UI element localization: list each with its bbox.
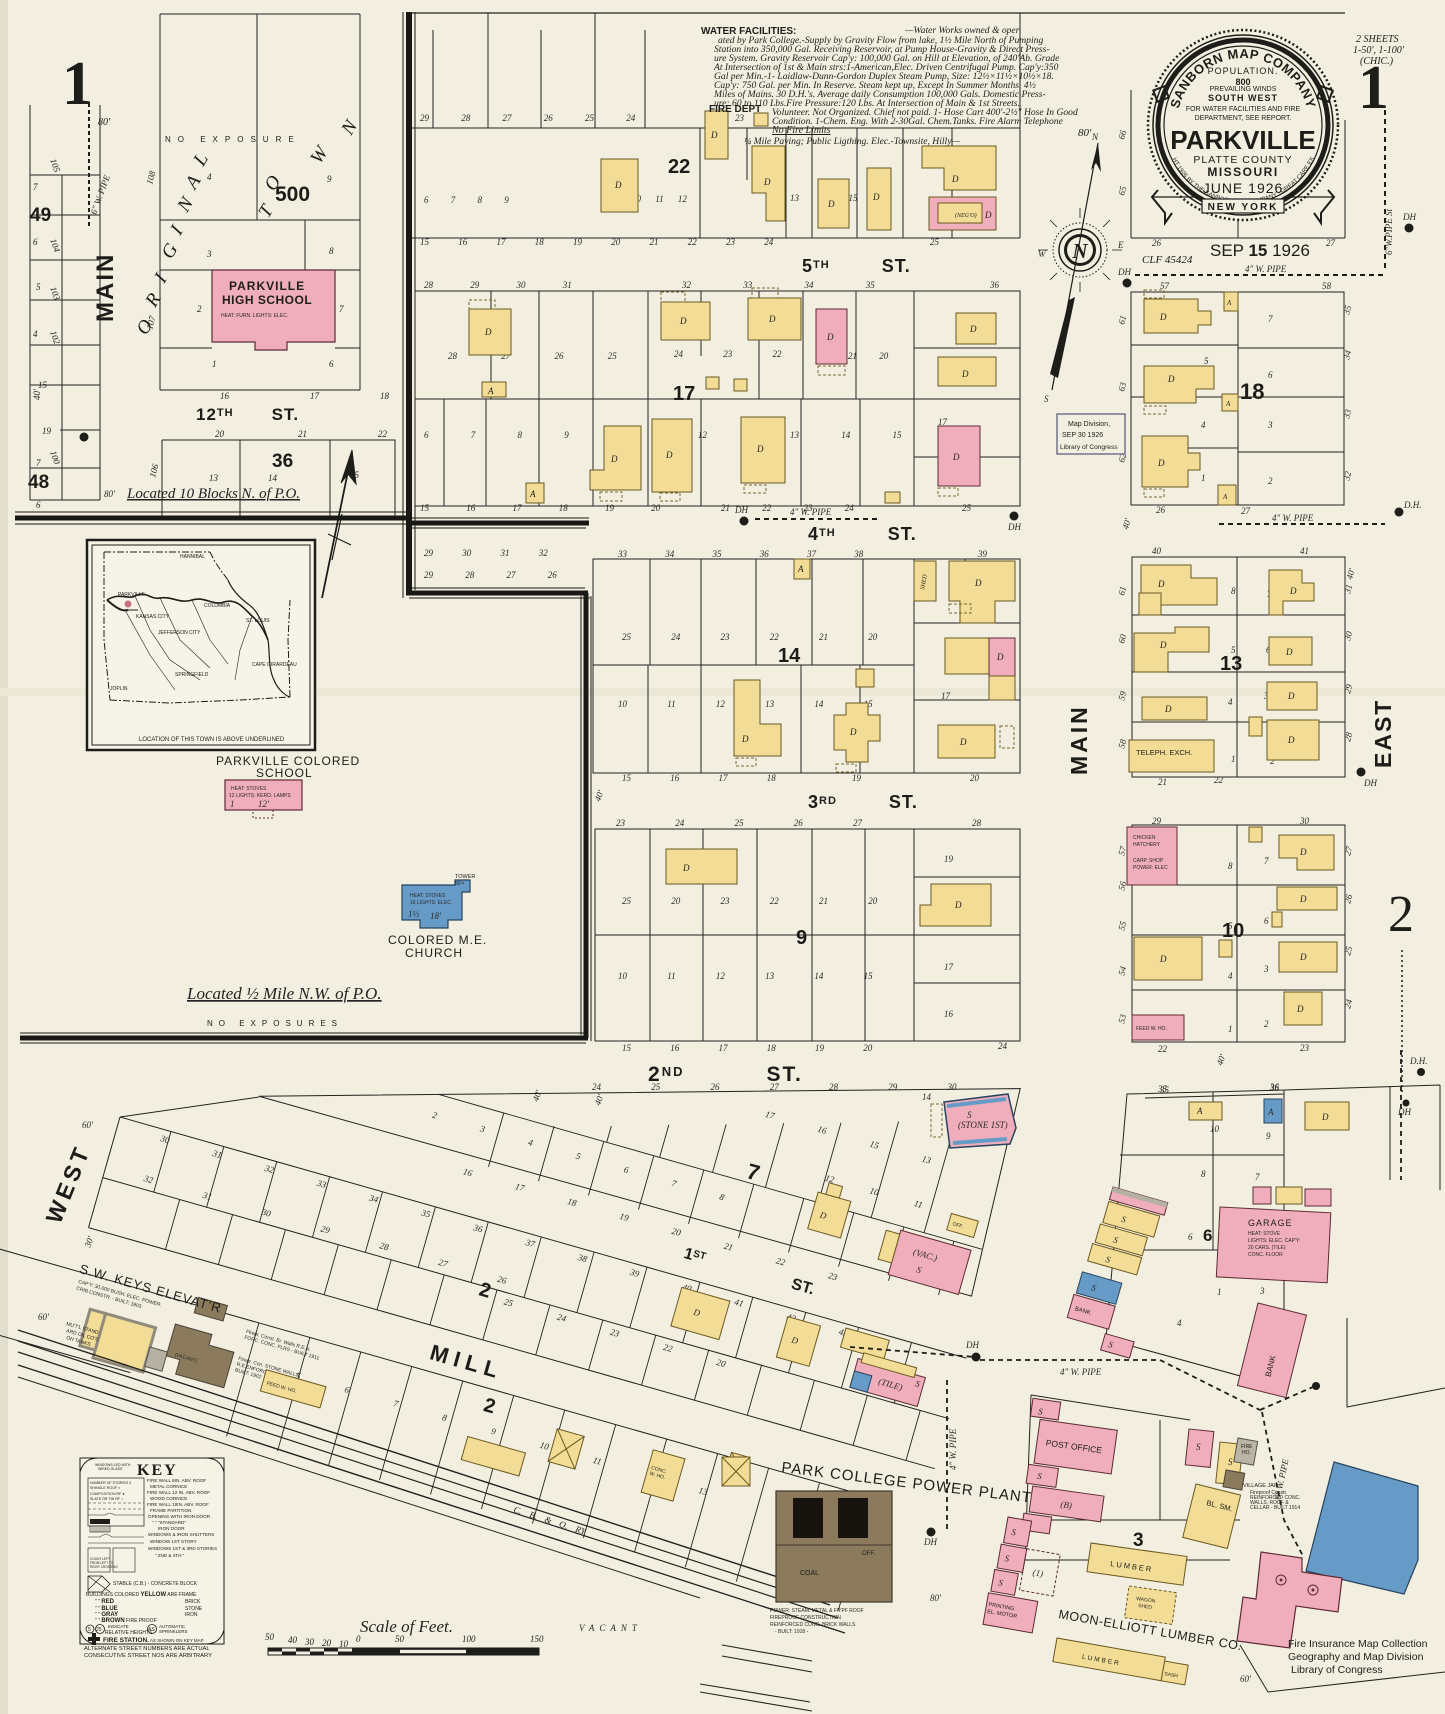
svg-text:D: D xyxy=(1157,458,1165,468)
svg-text:41: 41 xyxy=(1300,546,1309,556)
svg-text:SPRINKLERS: SPRINKLERS xyxy=(159,1629,188,1634)
svg-text:RELATIVE HEIGHTS: RELATIVE HEIGHTS xyxy=(105,1630,153,1636)
svg-text:1½: 1½ xyxy=(408,909,420,919)
svg-text:13: 13 xyxy=(1220,653,1242,675)
svg-text:No Fire Limits: No Fire Limits xyxy=(771,125,831,136)
svg-text:2: 2 xyxy=(1388,886,1414,943)
svg-text:TELEPH. EXCH.: TELEPH. EXCH. xyxy=(1136,748,1192,757)
svg-text:D: D xyxy=(1299,952,1307,962)
svg-text:COLORED M.E.: COLORED M.E. xyxy=(388,933,487,947)
svg-text:DEPARTMENT, SEE REPORT.: DEPARTMENT, SEE REPORT. xyxy=(1195,115,1292,122)
svg-text:10 11 12 13 14 15: 10 11 12 13 14 15 xyxy=(618,971,873,981)
svg-text:IRON: IRON xyxy=(185,1612,198,1618)
svg-text:D: D xyxy=(1321,1112,1329,1122)
svg-text:BRICK: BRICK xyxy=(185,1599,201,1605)
svg-text:7: 7 xyxy=(1268,314,1273,324)
svg-text:FOR WATER FACILITIES AND FIRE: FOR WATER FACILITIES AND FIRE xyxy=(1186,106,1301,113)
svg-text:NUMBER OF STORIES 2: NUMBER OF STORIES 2 xyxy=(90,1481,131,1485)
svg-text:15 16 17 18: 15 16 17 18 xyxy=(622,773,776,783)
svg-text:POWER: STEAM. METAL & FR'PF RO: POWER: STEAM. METAL & FR'PF ROOF xyxy=(770,1608,864,1614)
svg-text:19: 19 xyxy=(944,854,954,864)
svg-text:D: D xyxy=(1285,647,1293,657)
svg-text:" " "STANDARD": " " "STANDARD" xyxy=(152,1520,186,1525)
svg-text:CONSECUTIVE STREET NOS ARE ARB: CONSECUTIVE STREET NOS ARE ARBITRARY xyxy=(84,1653,212,1659)
svg-text:1: 1 xyxy=(1217,1287,1222,1297)
svg-text:CELLAR - BUILT 1914: CELLAR - BUILT 1914 xyxy=(1250,1505,1300,1511)
svg-text:16: 16 xyxy=(220,391,230,401)
svg-text:2: 2 xyxy=(1268,476,1273,486)
svg-text:48: 48 xyxy=(28,472,49,493)
svg-text:PARKVILLE: PARKVILLE xyxy=(1170,125,1315,155)
svg-text:MISSOURI: MISSOURI xyxy=(1207,165,1278,179)
svg-text:DH: DH xyxy=(1397,1107,1411,1117)
svg-text:5: 5 xyxy=(88,1627,91,1633)
svg-text:CLF 45424: CLF 45424 xyxy=(1142,254,1193,266)
svg-text:CONC. FLOOR: CONC. FLOOR xyxy=(1248,1252,1283,1258)
svg-text:500: 500 xyxy=(275,183,310,206)
svg-text:A: A xyxy=(1196,1106,1203,1116)
svg-text:CHURCH: CHURCH xyxy=(405,946,463,960)
svg-text:SHINGLE ROOF ×: SHINGLE ROOF × xyxy=(90,1486,120,1490)
svg-text:D: D xyxy=(984,210,992,220)
svg-text:DH: DH xyxy=(923,1537,937,1547)
svg-text:(1): (1) xyxy=(1032,1567,1044,1579)
svg-text:14: 14 xyxy=(778,645,801,667)
svg-text:DH: DH xyxy=(1117,267,1131,277)
svg-text:MAIN: MAIN xyxy=(92,253,119,322)
svg-text:6: 6 xyxy=(1203,1226,1212,1245)
svg-text:HATCHERY: HATCHERY xyxy=(1133,842,1161,848)
svg-text:S: S xyxy=(1228,1457,1233,1467)
svg-text:50'×: 50'× xyxy=(455,881,465,887)
svg-text:D: D xyxy=(665,450,673,460)
svg-text:15: 15 xyxy=(38,380,48,390)
svg-text:FIRE WALL 12 IN. ABV. ROOF: FIRE WALL 12 IN. ABV. ROOF xyxy=(147,1490,210,1495)
svg-text:16 LIGHTS: ELEC.: 16 LIGHTS: ELEC. xyxy=(410,900,452,906)
svg-text:FRAME PARTITION: FRAME PARTITION xyxy=(150,1508,191,1513)
svg-text:D: D xyxy=(763,177,771,187)
svg-text:JOPLIN: JOPLIN xyxy=(110,686,128,692)
svg-text:20: 20 xyxy=(322,1638,332,1648)
svg-text:D: D xyxy=(959,737,967,747)
svg-text:A: A xyxy=(1267,1107,1274,1117)
svg-text:WOOD CORNICE: WOOD CORNICE xyxy=(150,1496,187,1501)
svg-text:6: 6 xyxy=(36,500,41,510)
svg-text:SEP 15 1926: SEP 15 1926 xyxy=(1210,241,1310,260)
svg-text:4: 4 xyxy=(33,329,38,339)
svg-text:21 20: 21 20 xyxy=(848,351,889,361)
svg-text:D: D xyxy=(951,174,959,184)
svg-text:24 23 22: 24 23 22 xyxy=(674,349,782,359)
svg-text:MAIN: MAIN xyxy=(1066,704,1092,775)
svg-text:D: D xyxy=(741,734,749,744)
svg-text:4: 4 xyxy=(1228,697,1233,707)
svg-text:D: D xyxy=(996,652,1004,662)
svg-text:Library of Congress: Library of Congress xyxy=(1291,1664,1383,1676)
svg-text:- BUILT: 1918 -: - BUILT: 1918 - xyxy=(775,1629,809,1635)
svg-text:D: D xyxy=(679,316,687,326)
svg-text:3: 3 xyxy=(1267,420,1273,430)
svg-text:6 7 8 9: 6 7 8 9 xyxy=(424,195,509,205)
svg-text:(NEG'O): (NEG'O) xyxy=(955,212,977,219)
svg-text:22: 22 xyxy=(1214,775,1224,785)
svg-text:35: 35 xyxy=(1159,1085,1170,1095)
svg-text:50: 50 xyxy=(265,1632,275,1642)
svg-text:A: A xyxy=(529,489,536,499)
svg-text:Scale of Feet.: Scale of Feet. xyxy=(360,1617,453,1636)
svg-text:Map Division,: Map Division, xyxy=(1068,421,1110,428)
svg-text:4" W. PIPE: 4" W. PIPE xyxy=(790,507,832,517)
svg-text:FIRE WALL 18IN. ABV. ROOF: FIRE WALL 18IN. ABV. ROOF xyxy=(147,1502,209,1507)
svg-text:WINDOW 1ST STORY: WINDOW 1ST STORY xyxy=(150,1539,197,1544)
svg-text:10: 10 xyxy=(1222,920,1244,942)
svg-text:3: 3 xyxy=(1259,1286,1265,1296)
svg-text:28 29 30 31: 28 29 30 31 xyxy=(424,280,572,290)
svg-text:SCHOOL: SCHOOL xyxy=(256,766,313,780)
svg-text:D: D xyxy=(682,863,690,873)
svg-text:39: 39 xyxy=(977,549,988,559)
svg-text:17: 17 xyxy=(944,962,954,972)
svg-text:D: D xyxy=(710,130,718,140)
svg-text:12': 12' xyxy=(258,799,270,809)
svg-text:D: D xyxy=(954,900,962,910)
svg-text:30: 30 xyxy=(304,1637,315,1647)
svg-text:D: D xyxy=(1287,691,1295,701)
svg-text:D: D xyxy=(484,327,492,337)
svg-text:150: 150 xyxy=(530,1634,544,1644)
svg-text:20: 20 xyxy=(215,429,225,439)
svg-text:36: 36 xyxy=(272,451,293,472)
svg-text:REINFORCED CONC. BRICK WALLS: REINFORCED CONC. BRICK WALLS xyxy=(770,1622,856,1628)
svg-text:Fire Insurance Map Collection: Fire Insurance Map Collection xyxy=(1288,1638,1428,1650)
svg-text:23: 23 xyxy=(1300,1043,1310,1053)
svg-text:PARKVILLE: PARKVILLE xyxy=(229,279,305,293)
svg-text:40': 40' xyxy=(32,388,42,400)
svg-text:22: 22 xyxy=(378,429,388,439)
svg-text:WINDOWS & IRON SHUTTERS: WINDOWS & IRON SHUTTERS xyxy=(148,1532,214,1537)
svg-text:14: 14 xyxy=(922,1092,932,1102)
svg-text:SPRINGFIELD: SPRINGFIELD xyxy=(175,672,209,678)
svg-text:17: 17 xyxy=(310,391,320,401)
svg-text:40: 40 xyxy=(1152,546,1162,556)
svg-text:HEAT: STOVES: HEAT: STOVES xyxy=(410,893,446,899)
svg-text:Located ½ Mile N.W. of P.O.: Located ½ Mile N.W. of P.O. xyxy=(186,984,382,1003)
svg-text:8: 8 xyxy=(1228,861,1233,871)
svg-text:15 16 17 18 19 20: 15 16 17 18 19 20 xyxy=(622,1043,873,1053)
svg-text:13: 13 xyxy=(209,473,219,483)
svg-text:2 SHEETS: 2 SHEETS xyxy=(1356,34,1399,45)
svg-text:1: 1 xyxy=(1228,1024,1233,1034)
svg-text:4: 4 xyxy=(207,172,212,182)
svg-text:6"W.PIPE St: 6"W.PIPE St xyxy=(1384,209,1394,255)
svg-text:4: 4 xyxy=(1177,1318,1182,1328)
svg-text:POWER: ELEC: POWER: ELEC xyxy=(1133,865,1168,871)
svg-text:7: 7 xyxy=(36,458,41,468)
svg-text:25 20 23 22 21 20: 25 20 23 22 21 20 xyxy=(622,896,878,906)
svg-text:60': 60' xyxy=(38,1312,50,1322)
svg-text:6: 6 xyxy=(329,359,334,369)
svg-text:8: 8 xyxy=(329,246,334,256)
svg-text:DH: DH xyxy=(1363,778,1377,788)
svg-text:24 25 26 27 28 29 30: 24 25 26 27 28 29 30 xyxy=(592,1082,957,1092)
svg-text:3: 3 xyxy=(1133,1530,1144,1551)
svg-text:28: 28 xyxy=(972,818,982,828)
svg-text:5: 5 xyxy=(36,282,41,292)
svg-text:2: 2 xyxy=(197,304,202,314)
svg-text:8: 8 xyxy=(1201,1169,1206,1179)
svg-text:9: 9 xyxy=(1266,1131,1271,1141)
svg-text:1: 1 xyxy=(1358,54,1389,122)
svg-text:PREVAILING WINDS: PREVAILING WINDS xyxy=(1210,86,1277,93)
svg-text:9: 9 xyxy=(327,174,332,184)
svg-text:SLATE OR TIN RF ○: SLATE OR TIN RF ○ xyxy=(90,1497,123,1501)
svg-text:9: 9 xyxy=(796,927,807,949)
svg-text:29 28 27 26: 29 28 27 26 xyxy=(424,570,557,580)
svg-text:COMPOSITION RF ●: COMPOSITION RF ● xyxy=(90,1492,125,1496)
svg-text:FEED W. HO.: FEED W. HO. xyxy=(1136,1026,1167,1032)
svg-text:21: 21 xyxy=(298,429,307,439)
svg-text:80': 80' xyxy=(98,117,111,128)
svg-text:17: 17 xyxy=(673,383,695,405)
svg-text:18: 18 xyxy=(1240,379,1264,404)
svg-text:D: D xyxy=(756,444,764,454)
svg-text:D: D xyxy=(872,192,880,202)
svg-text:D: D xyxy=(768,314,776,324)
svg-text:IRON DOOR: IRON DOOR xyxy=(158,1526,185,1531)
svg-text:18: 18 xyxy=(380,391,390,401)
svg-text:CHICKEN: CHICKEN xyxy=(1133,835,1156,841)
svg-text:36: 36 xyxy=(1269,1083,1280,1093)
svg-text:(STONE 1ST): (STONE 1ST) xyxy=(958,1120,1008,1130)
svg-text:EAST: EAST xyxy=(1370,699,1396,768)
svg-text:D: D xyxy=(974,578,982,588)
svg-text:Located 10 Blocks N. of P.O.: Located 10 Blocks N. of P.O. xyxy=(126,486,300,502)
svg-text:A: A xyxy=(1222,493,1228,501)
svg-text:7: 7 xyxy=(1255,1172,1260,1182)
svg-text:WIRED GLASS: WIRED GLASS xyxy=(98,1467,123,1471)
svg-text:4" W. PIPE: 4" W. PIPE xyxy=(1272,513,1314,523)
svg-text:5: 5 xyxy=(1228,921,1233,931)
svg-text:OPENING WITH IRON DOOR: OPENING WITH IRON DOOR xyxy=(148,1514,211,1519)
svg-text:HIGH SCHOOL: HIGH SCHOOL xyxy=(222,293,312,307)
svg-text:19: 19 xyxy=(42,426,52,436)
svg-text:D: D xyxy=(826,332,834,342)
svg-text:6: 6 xyxy=(33,237,38,247)
svg-text:25 24 23 22 21 20: 25 24 23 22 21 20 xyxy=(622,632,878,642)
svg-text:BUILDINGS COLORED YELLOW ARE F: BUILDINGS COLORED YELLOW ARE FRAME xyxy=(86,1592,197,1598)
svg-text:D: D xyxy=(614,180,622,190)
svg-text:1: 1 xyxy=(212,359,217,369)
svg-text:DH: DH xyxy=(734,505,748,515)
svg-text:RIGHT CROSSING: RIGHT CROSSING xyxy=(90,1565,118,1569)
svg-text:ALTERNATE STREET NUMBERS ARE A: ALTERNATE STREET NUMBERS ARE ACTUAL xyxy=(84,1646,210,1652)
svg-text:S: S xyxy=(967,1110,972,1120)
svg-text:D: D xyxy=(1159,954,1167,964)
svg-text:80': 80' xyxy=(104,489,116,499)
svg-text:33 34 35 36 37 38: 33 34 35 36 37 38 xyxy=(617,549,864,559)
svg-text:19: 19 xyxy=(852,773,862,783)
svg-text:D: D xyxy=(1287,735,1295,745)
svg-text:HO.: HO. xyxy=(1242,1450,1251,1456)
svg-text:D.H.: D.H. xyxy=(1403,500,1422,510)
svg-text:AS: AS xyxy=(148,1627,155,1633)
svg-text:INDICATE: INDICATE xyxy=(108,1624,129,1629)
svg-text:80': 80' xyxy=(930,1593,942,1603)
svg-text:VILLAGE JAIL: VILLAGE JAIL xyxy=(1243,1483,1278,1489)
svg-text:D: D xyxy=(952,452,960,462)
svg-text:3: 3 xyxy=(206,249,212,259)
svg-text:POPULATION.: POPULATION. xyxy=(1208,66,1279,76)
svg-text:HEAT: STOVE: HEAT: STOVE xyxy=(1248,1231,1281,1237)
svg-text:FIRE WALL 6IN. ABV. ROOF: FIRE WALL 6IN. ABV. ROOF xyxy=(147,1478,206,1483)
svg-text:Geography and Map Division: Geography and Map Division xyxy=(1288,1651,1424,1663)
svg-text:VACANT: VACANT xyxy=(579,1623,642,1633)
svg-text:NEW YORK: NEW YORK xyxy=(1208,202,1279,213)
svg-text:CAPE GIRARDEAU: CAPE GIRARDEAU xyxy=(252,662,297,668)
svg-text:D: D xyxy=(1164,704,1172,714)
svg-text:" 2ND & 4TH ": " 2ND & 4TH " xyxy=(155,1553,185,1558)
svg-text:KANSAS CITY: KANSAS CITY xyxy=(136,614,170,620)
svg-text:4" W. PIPE: 4" W. PIPE xyxy=(948,1428,958,1470)
svg-text:14: 14 xyxy=(268,473,278,483)
svg-text:60': 60' xyxy=(82,1120,94,1130)
svg-text:FIRE DEPT: FIRE DEPT xyxy=(709,104,761,115)
svg-text:24: 24 xyxy=(998,1041,1008,1051)
svg-text:22: 22 xyxy=(1158,1044,1168,1054)
svg-text:5: 5 xyxy=(1231,645,1236,655)
svg-text:D: D xyxy=(1159,640,1167,650)
svg-text:25: 25 xyxy=(962,503,972,513)
svg-text:29 28 27 26 25 24: 29 28 27 26 25 24 xyxy=(420,113,636,123)
svg-text:4" W. PIPE: 4" W. PIPE xyxy=(1060,1367,1102,1377)
svg-text:METAL CORNICE: METAL CORNICE xyxy=(150,1484,187,1489)
svg-text:TOWER: TOWER xyxy=(455,874,475,880)
svg-text:15 16 17 18 19 20 21 22 23 24: 15 16 17 18 19 20 21 22 23 24 xyxy=(420,237,774,247)
svg-text:ST. LOUIS: ST. LOUIS xyxy=(246,618,270,624)
svg-text:1: 1 xyxy=(230,799,235,809)
svg-text:4: 4 xyxy=(1228,971,1233,981)
svg-text:50: 50 xyxy=(395,1634,405,1644)
svg-text:A: A xyxy=(1225,400,1231,408)
svg-text:16: 16 xyxy=(944,1009,954,1019)
svg-text:18': 18' xyxy=(430,911,442,921)
svg-text:13 14 15: 13 14 15 xyxy=(790,430,902,440)
svg-text:6: 6 xyxy=(1264,916,1269,926)
svg-text:COLUMBIA: COLUMBIA xyxy=(204,603,231,609)
svg-text:21: 21 xyxy=(1158,777,1167,787)
svg-text:100: 100 xyxy=(462,1634,476,1644)
svg-text:PARKVILLE: PARKVILLE xyxy=(118,592,146,598)
svg-text:7: 7 xyxy=(339,304,344,314)
svg-text:7: 7 xyxy=(33,182,38,192)
svg-text:JUNE 1926: JUNE 1926 xyxy=(1203,180,1284,196)
svg-text:D: D xyxy=(961,369,969,379)
svg-text:SEP 30 1926: SEP 30 1926 xyxy=(1062,432,1103,439)
svg-text:60': 60' xyxy=(1240,1674,1252,1684)
svg-text:58: 58 xyxy=(1322,281,1332,291)
svg-text:HEAT: STOVES: HEAT: STOVES xyxy=(231,786,267,792)
svg-text:NO EXPOSURES: NO EXPOSURES xyxy=(207,1019,343,1028)
svg-text:DH: DH xyxy=(965,1340,979,1350)
svg-text:SOUTH WEST: SOUTH WEST xyxy=(1208,93,1278,103)
svg-text:¼ Mile Paving; Public Ligthing: ¼ Mile Paving; Public Ligthing. Elec.-To… xyxy=(744,136,960,147)
svg-text:D: D xyxy=(610,454,618,464)
svg-text:40: 40 xyxy=(288,1635,298,1645)
svg-text:49: 49 xyxy=(30,205,51,226)
svg-text:27: 27 xyxy=(1326,238,1336,248)
svg-text:JEFFERSON CITY: JEFFERSON CITY xyxy=(158,630,201,636)
svg-text:HANNIBAL: HANNIBAL xyxy=(180,554,205,560)
svg-text:17: 17 xyxy=(941,691,951,701)
svg-text:Library of Congress: Library of Congress xyxy=(1060,444,1118,451)
svg-text:CARP. SHOP: CARP. SHOP xyxy=(1133,858,1164,864)
svg-text:4" W. PIPE: 4" W. PIPE xyxy=(1245,264,1287,274)
svg-text:3: 3 xyxy=(1263,964,1269,974)
svg-text:5: 5 xyxy=(1204,356,1209,366)
svg-text:D: D xyxy=(1296,1004,1304,1014)
svg-text:10 11 12: 10 11 12 xyxy=(632,194,687,204)
svg-text:STABLE (C.B.) - CONCRETE BLOC: STABLE (C.B.) - CONCRETE BLOCK xyxy=(113,1581,198,1587)
svg-text:1: 1 xyxy=(62,50,93,118)
svg-text:20: 20 xyxy=(970,773,980,783)
svg-text:WINDOWS 1ST & 3RD STORIES: WINDOWS 1ST & 3RD STORIES xyxy=(148,1546,217,1551)
svg-text:6: 6 xyxy=(1188,1232,1193,1242)
svg-text:DH: DH xyxy=(1402,212,1416,222)
svg-text:HEAT: FURN. LIGHTS: ELEC.: HEAT: FURN. LIGHTS: ELEC. xyxy=(221,313,288,319)
svg-text:10: 10 xyxy=(1210,1124,1220,1134)
svg-text:25: 25 xyxy=(96,1627,102,1633)
svg-text:D: D xyxy=(969,324,977,334)
svg-text:D: D xyxy=(1159,312,1167,322)
svg-text:80': 80' xyxy=(1078,127,1092,139)
svg-text:2: 2 xyxy=(1264,1019,1269,1029)
svg-text:D: D xyxy=(849,727,857,737)
svg-text:FIRE STATION. AS SHOWN ON KEY: FIRE STATION. AS SHOWN ON KEY MAP xyxy=(103,1637,204,1644)
svg-text:6: 6 xyxy=(1268,370,1273,380)
svg-text:KEY: KEY xyxy=(137,1462,178,1479)
svg-text:D: D xyxy=(1299,847,1307,857)
svg-text:36: 36 xyxy=(989,280,1000,290)
svg-text:23 24 25 26 27: 23 24 25 26 27 xyxy=(616,818,863,828)
svg-text:(B): (B) xyxy=(1060,1499,1073,1511)
svg-text:GARAGE: GARAGE xyxy=(1248,1218,1293,1228)
svg-text:29 30 31 32: 29 30 31 32 xyxy=(424,548,548,558)
svg-text:26: 26 xyxy=(1156,505,1166,515)
svg-text:1: 1 xyxy=(1201,473,1206,483)
svg-text:N: N xyxy=(1091,132,1099,142)
svg-text:E: E xyxy=(1117,240,1124,250)
svg-text:25: 25 xyxy=(930,237,940,247)
svg-text:27: 27 xyxy=(1241,506,1251,516)
svg-text:6 7 8 9: 6 7 8 9 xyxy=(424,430,569,440)
svg-text:FIREPROOF CONSTRUCTION: FIREPROOF CONSTRUCTION xyxy=(770,1615,841,1621)
svg-text:D: D xyxy=(1167,374,1175,384)
svg-text:OFF.: OFF. xyxy=(862,1551,875,1557)
svg-text:NO EXPOSURE: NO EXPOSURE xyxy=(165,135,301,144)
svg-text:A: A xyxy=(797,564,804,574)
svg-text:8: 8 xyxy=(1231,586,1236,596)
svg-text:D: D xyxy=(1289,586,1297,596)
svg-text:D.H.: D.H. xyxy=(1409,1056,1428,1066)
svg-text:COAL: COAL xyxy=(800,1570,819,1577)
svg-text:S: S xyxy=(1196,1442,1201,1452)
svg-text:D: D xyxy=(827,199,835,209)
svg-text:D: D xyxy=(1157,579,1165,589)
svg-text:LOCATION OF THIS TOWN IS ABOVE: LOCATION OF THIS TOWN IS ABOVE UNDERLINE… xyxy=(139,737,285,743)
svg-text:S: S xyxy=(1044,394,1049,404)
svg-text:DH: DH xyxy=(1007,522,1021,532)
svg-text:0: 0 xyxy=(356,1634,361,1644)
